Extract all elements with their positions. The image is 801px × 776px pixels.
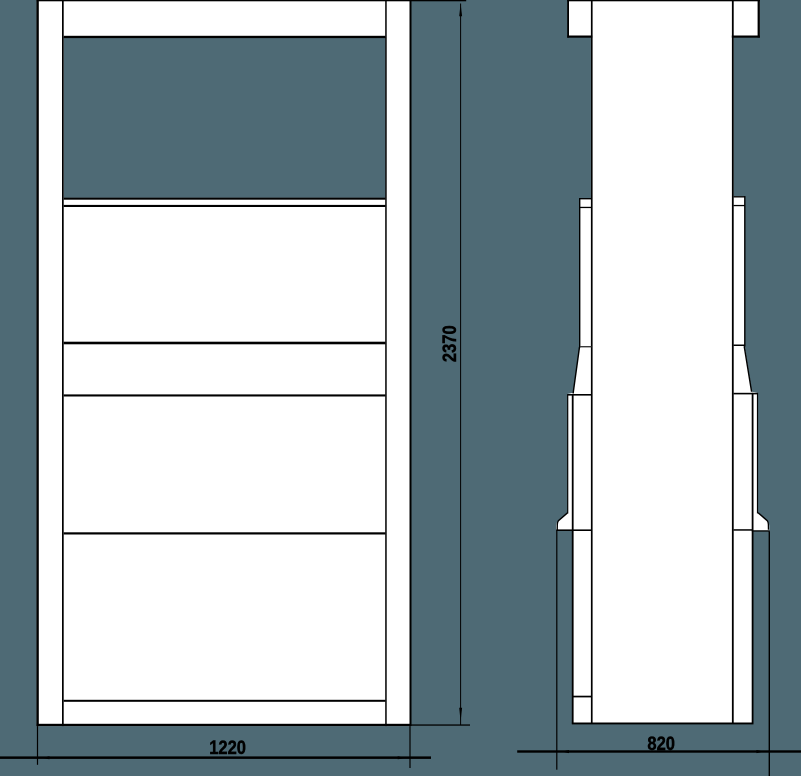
svg-text:820: 820 <box>647 733 675 754</box>
svg-text:2370: 2370 <box>439 325 460 362</box>
svg-text:1220: 1220 <box>209 737 246 758</box>
